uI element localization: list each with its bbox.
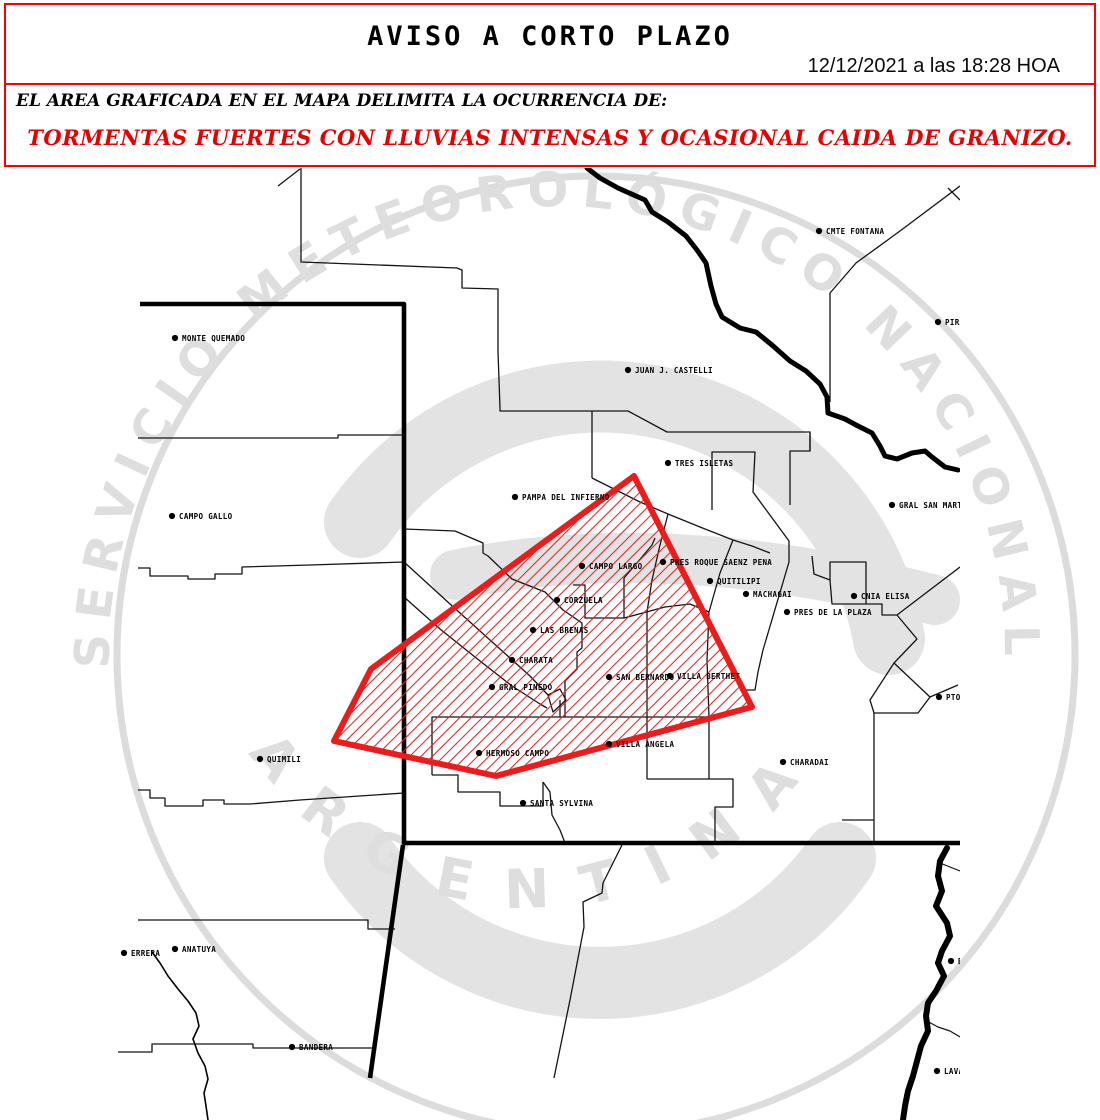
city-label: CHARATA xyxy=(519,656,553,665)
city-marker: PRES DE LA PLAZA xyxy=(784,608,872,617)
issue-datetime: 12/12/2021 a las 18:28 HOA xyxy=(808,55,1060,78)
weather-advisory-page: SERVICIO METEOROLÓGICO NACIONALARGENTINA… xyxy=(0,0,1100,1120)
notice-text: EL AREA GRAFICADA EN EL MAPA DELIMITA LA… xyxy=(16,91,667,111)
city-label: LAVA xyxy=(944,1067,964,1076)
city-dot xyxy=(936,694,942,700)
city-marker: LAVA xyxy=(934,1067,964,1076)
city-marker: HERMOSO CAMPO xyxy=(476,749,549,758)
city-dot xyxy=(935,319,941,325)
city-marker: PAMPA DEL INFIERNO xyxy=(512,493,610,502)
city-dot xyxy=(948,958,954,964)
city-dot xyxy=(172,946,178,952)
city-dot xyxy=(665,460,671,466)
city-marker: ERRERA xyxy=(121,949,160,958)
city-label: GRAL SAN MARTI xyxy=(899,501,967,510)
city-dot xyxy=(743,591,749,597)
city-dot xyxy=(554,597,560,603)
city-dot xyxy=(512,494,518,500)
city-label: CNIA ELISA xyxy=(861,592,910,601)
city-dot xyxy=(606,674,612,680)
city-dot xyxy=(851,593,857,599)
city-label: JUAN J. CASTELLI xyxy=(635,366,713,375)
city-marker: VILLA BERTHET xyxy=(667,672,740,681)
city-dot xyxy=(289,1044,295,1050)
city-dot xyxy=(660,559,666,565)
city-label: MONTE QUEMADO xyxy=(182,334,245,343)
city-label: TRES ISLETAS xyxy=(675,459,734,468)
city-marker: MONTE QUEMADO xyxy=(172,334,245,343)
city-marker: GRAL PINEDO xyxy=(489,683,553,692)
city-label: PIRA xyxy=(945,318,965,327)
city-label: BANDERA xyxy=(299,1043,333,1052)
city-label: PRES ROQUE SAENZ PENA xyxy=(670,558,772,567)
city-dot xyxy=(780,759,786,765)
city-dot xyxy=(509,657,515,663)
city-label: PRES DE LA PLAZA xyxy=(794,608,872,617)
city-dot xyxy=(784,609,790,615)
header-title-box: AVISO A CORTO PLAZO 12/12/2021 a las 18:… xyxy=(4,3,1096,85)
city-label: VILLA ANGELA xyxy=(616,740,675,749)
city-label: ERRERA xyxy=(131,949,160,958)
city-marker: SAN BERNARDO xyxy=(606,673,675,682)
city-marker: ANATUYA xyxy=(172,945,216,954)
city-dot xyxy=(530,627,536,633)
city-dot xyxy=(707,578,713,584)
city-dot xyxy=(476,750,482,756)
city-label: QUITILIPI xyxy=(717,577,761,586)
city-dot xyxy=(489,684,495,690)
warning-text: TORMENTAS FUERTES CON LLUVIAS INTENSAS Y… xyxy=(6,125,1094,150)
page-title: AVISO A CORTO PLAZO xyxy=(6,21,1094,52)
city-label: SAN BERNARDO xyxy=(616,673,675,682)
city-marker: JUAN J. CASTELLI xyxy=(625,366,713,375)
city-marker: MACHAGAI xyxy=(743,590,792,599)
city-label: CAMPO GALLO xyxy=(179,512,233,521)
city-dot xyxy=(667,673,673,679)
city-marker: PRES ROQUE SAENZ PENA xyxy=(660,558,772,567)
city-marker: GRAL SAN MARTI xyxy=(889,501,967,510)
city-marker: VILLA ANGELA xyxy=(606,740,675,749)
city-marker: CAMPO LARGO xyxy=(579,562,643,571)
city-label: CMTE FONTANA xyxy=(826,227,885,236)
city-label: HERMOSO CAMPO xyxy=(486,749,549,758)
city-dot xyxy=(169,513,175,519)
city-label: CAMPO LARGO xyxy=(589,562,643,571)
city-dot xyxy=(625,367,631,373)
city-marker: BANDERA xyxy=(289,1043,333,1052)
city-dot xyxy=(520,800,526,806)
city-label: PTO xyxy=(946,693,961,702)
city-dot xyxy=(816,228,822,234)
warning-box: EL AREA GRAFICADA EN EL MAPA DELIMITA LA… xyxy=(4,83,1096,167)
city-label: QUIMILI xyxy=(267,755,301,764)
city-dot xyxy=(121,950,127,956)
city-label: ANATUYA xyxy=(182,945,216,954)
city-label: CHARADAI xyxy=(790,758,829,767)
city-label: VILLA BERTHET xyxy=(677,672,740,681)
city-dot xyxy=(579,563,585,569)
city-marker: CMTE FONTANA xyxy=(816,227,885,236)
city-label: GRAL PINEDO xyxy=(499,683,553,692)
city-label: CORZUELA xyxy=(564,596,603,605)
city-marker: PTO xyxy=(936,693,961,702)
city-marker: TRES ISLETAS xyxy=(665,459,734,468)
city-label: MACHAGAI xyxy=(753,590,792,599)
city-dot xyxy=(257,756,263,762)
city-dot xyxy=(172,335,178,341)
city-dot xyxy=(606,741,612,747)
city-marker: CAMPO GALLO xyxy=(169,512,233,521)
advisory-map: SERVICIO METEOROLÓGICO NACIONALARGENTINA… xyxy=(0,0,1100,1120)
city-dot xyxy=(889,502,895,508)
city-label: PAMPA DEL INFIERNO xyxy=(522,493,610,502)
city-label: SANTA SYLVINA xyxy=(530,799,593,808)
city-label: LAS BRENAS xyxy=(540,626,589,635)
city-dot xyxy=(934,1068,940,1074)
city-marker: SANTA SYLVINA xyxy=(520,799,593,808)
